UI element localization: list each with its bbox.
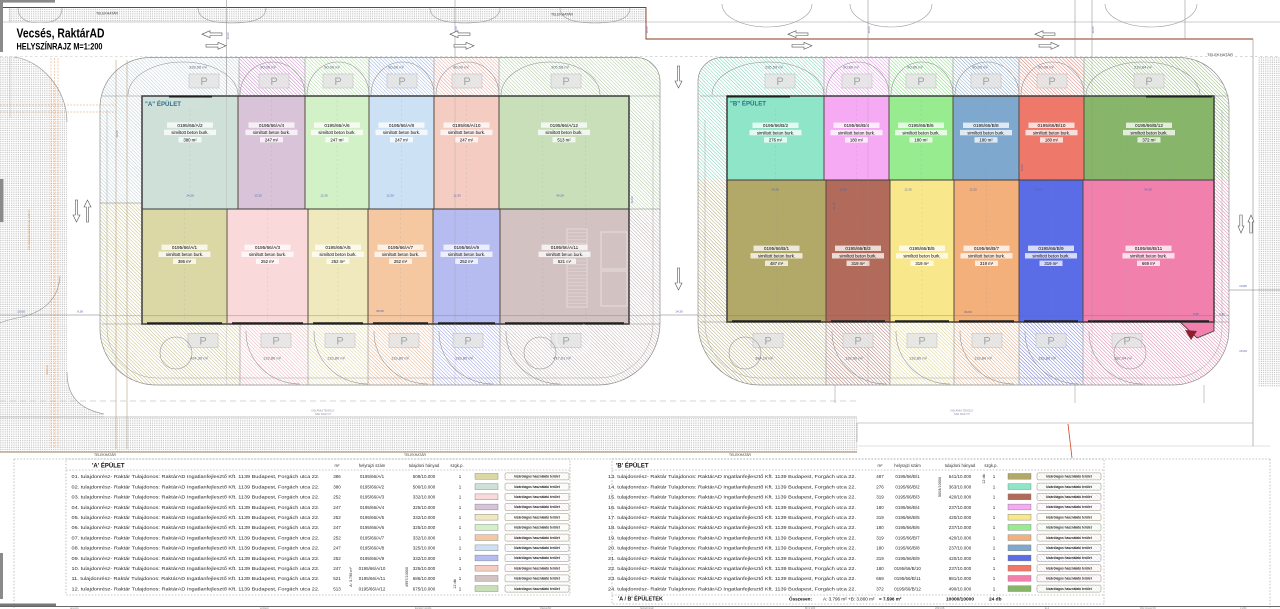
svg-text:similtott beton burk.: similtott beton burk.	[838, 130, 875, 135]
svg-text:0195/66/B/8: 0195/66/B/8	[895, 546, 920, 551]
svg-text:0195/66/B/10: 0195/66/B/10	[894, 566, 921, 571]
svg-text:0195/66/A/4: 0195/66/A/4	[360, 505, 385, 510]
svg-text:14,28: 14,28	[186, 194, 194, 198]
svg-text:500/10.000: 500/10.000	[413, 484, 436, 489]
svg-text:380: 380	[333, 484, 341, 489]
svg-text:332/10.000: 332/10.000	[413, 495, 436, 500]
svg-text:kizárólagos használatú terület: kizárólagos használatú terület	[514, 566, 560, 570]
svg-text:TELEKHATÁR: TELEKHATÁR	[1207, 52, 1233, 57]
svg-text:similtott beton burk.: similtott beton burk.	[319, 252, 356, 257]
svg-text:641/10.000: 641/10.000	[949, 474, 972, 479]
svg-text:380 m²: 380 m²	[183, 137, 197, 142]
svg-text:325/10.000: 325/10.000	[413, 566, 436, 571]
svg-text:180 m²: 180 m²	[979, 138, 993, 143]
svg-text:319 m²: 319 m²	[1044, 261, 1058, 266]
svg-text:34,28: 34,28	[556, 194, 564, 198]
svg-text:247 m²: 247 m²	[460, 137, 474, 142]
svg-text:kizárólagos használatú terület: kizárólagos használatú terület	[514, 526, 560, 530]
svg-text:23. tulajdonrész- Raktár Tulaj: 23. tulajdonrész- Raktár Tulajdonos: Rak…	[608, 576, 856, 581]
svg-text:90,00 m²: 90,00 m²	[453, 65, 469, 70]
svg-text:12 db: 12 db	[453, 579, 457, 589]
svg-text:0195/66/A/8: 0195/66/A/8	[389, 123, 415, 128]
svg-text:34,28: 34,28	[1144, 188, 1152, 192]
svg-text:0195/66/A/9: 0195/66/A/9	[454, 245, 480, 250]
svg-text:12,30: 12,30	[969, 188, 977, 192]
svg-text:0195/66/B/9: 0195/66/B/9	[1038, 246, 1064, 251]
svg-text:0195/66/A/3: 0195/66/A/3	[360, 495, 385, 500]
svg-text:247: 247	[333, 525, 341, 530]
svg-text:TELEKHATÁR: TELEKHATÁR	[551, 13, 574, 17]
svg-text:133,80 m²: 133,80 m²	[974, 356, 993, 361]
svg-text:14,30: 14,30	[675, 310, 683, 314]
svg-text:P: P	[336, 336, 343, 348]
svg-text:0195/66/A/9: 0195/66/A/9	[360, 556, 385, 561]
svg-text:10000/10000: 10000/10000	[946, 597, 974, 603]
svg-text:kizárólagos használatú terület: kizárólagos használatú terület	[1046, 587, 1092, 591]
svg-text:0195/66/B/2: 0195/66/B/2	[763, 123, 789, 128]
svg-text:247 m²: 247 m²	[265, 137, 279, 142]
svg-text:0195/66/A/7: 0195/66/A/7	[388, 245, 414, 250]
svg-text:319 m²: 319 m²	[851, 261, 865, 266]
svg-text:21. tulajdonrész- Raktár Tulaj: 21. tulajdonrész- Raktár Tulajdonos: Rak…	[608, 556, 856, 561]
svg-text:tulajdoni hányad: tulajdoni hányad	[945, 463, 976, 468]
svg-text:09. tulajdonrész- Raktár Tulaj: 09. tulajdonrész- Raktár Tulajdonos: Rak…	[72, 556, 320, 561]
svg-text:0195/66/A/5: 0195/66/A/5	[360, 515, 385, 520]
svg-text:similtott beton burk.: similtott beton burk.	[903, 254, 940, 259]
svg-text:similtott beton burk.: similtott beton burk.	[166, 252, 203, 257]
svg-text:12,30: 12,30	[386, 194, 394, 198]
svg-text:0195/66/B/11: 0195/66/B/11	[894, 576, 921, 581]
svg-text:similtott beton burk.: similtott beton burk.	[171, 130, 208, 135]
svg-text:490/10.000: 490/10.000	[949, 586, 972, 591]
svg-text:180: 180	[876, 525, 884, 530]
svg-text:96,50: 96,50	[964, 310, 972, 314]
svg-text:5,45: 5,45	[1193, 312, 1199, 316]
svg-text:319: 319	[876, 556, 884, 561]
svg-text:tulajdoni hányad: tulajdoni hányad	[409, 463, 440, 468]
svg-text:252: 252	[333, 535, 341, 540]
svg-text:319 m²: 319 m²	[915, 261, 929, 266]
svg-text:881/10.000: 881/10.000	[949, 576, 972, 581]
svg-text:16. tulajdonrész- Raktár Tulaj: 16. tulajdonrész- Raktár Tulajdonos: Rak…	[608, 505, 856, 510]
svg-text:237/10.000: 237/10.000	[949, 505, 972, 510]
svg-text:similtott beton burk.: similtott beton burk.	[968, 254, 1005, 259]
svg-text:kizárólagos használatú terület: kizárólagos használatú terület	[1046, 495, 1092, 499]
svg-text:kizárólagos használatú terület: kizárólagos használatú terület	[514, 546, 560, 550]
svg-text:P: P	[464, 336, 471, 348]
svg-text:328,06 m²: 328,06 m²	[189, 65, 208, 70]
svg-text:325/10.000: 325/10.000	[413, 546, 436, 551]
svg-text:P: P	[562, 336, 569, 348]
svg-text:247: 247	[333, 505, 341, 510]
svg-text:15,60: 15,60	[17, 310, 25, 314]
svg-text:424,30 m²: 424,30 m²	[190, 356, 209, 361]
svg-text:kizárólagos használatú terület: kizárólagos használatú terület	[1046, 566, 1092, 570]
svg-text:386: 386	[333, 474, 341, 479]
svg-text:133,80 m²: 133,80 m²	[909, 356, 928, 361]
svg-text:12 db: 12 db	[982, 474, 986, 484]
svg-text:0195/66/A/2: 0195/66/A/2	[360, 484, 385, 489]
svg-text:P: P	[463, 76, 470, 88]
svg-text:P: P	[1145, 76, 1152, 88]
svg-text:04. tulajdonrész- Raktár Tulaj: 04. tulajdonrész- Raktár Tulajdonos: Rak…	[72, 505, 320, 510]
svg-text:0195/66/B/7: 0195/66/B/7	[895, 535, 920, 540]
svg-text:0195/66/B/10: 0195/66/B/10	[1038, 123, 1066, 128]
svg-text:similtott beton burk.: similtott beton burk.	[1130, 130, 1167, 135]
svg-text:133,80 m²: 133,80 m²	[455, 356, 474, 361]
svg-text:similtott beton burk.: similtott beton burk.	[382, 252, 419, 257]
svg-text:0195/66/A/6: 0195/66/A/6	[360, 525, 385, 530]
svg-text:247: 247	[333, 566, 341, 571]
svg-text:219,84 m²: 219,84 m²	[1134, 65, 1153, 70]
svg-text:P: P	[776, 76, 783, 88]
svg-text:14,28: 14,28	[771, 188, 779, 192]
svg-text:12,30: 12,30	[839, 188, 847, 192]
svg-text:319 m²: 319 m²	[980, 261, 994, 266]
svg-text:96,50: 96,50	[376, 309, 384, 313]
svg-text:4,0 méteres közmű sáv 140 m: 4,0 méteres közmű sáv 140 m	[27, 209, 31, 250]
svg-text:16,00: 16,00	[1091, 26, 1095, 33]
svg-text:P: P	[1048, 76, 1055, 88]
svg-text:133,80 m²: 133,80 m²	[263, 356, 282, 361]
svg-text:252 m²: 252 m²	[394, 259, 408, 264]
svg-text:P: P	[199, 336, 206, 348]
svg-text:20. tulajdonrész- Raktár Tulaj: 20. tulajdonrész- Raktár Tulajdonos: Rak…	[608, 546, 856, 551]
svg-text:10,86: 10,86	[1239, 284, 1247, 288]
svg-text:similtott beton burk.: similtott beton burk.	[1032, 254, 1069, 259]
svg-text:03. tulajdonrész- Raktár Tulaj: 03. tulajdonrész- Raktár Tulajdonos: Rak…	[72, 495, 320, 500]
svg-text:276: 276	[876, 484, 884, 489]
svg-text:252: 252	[333, 556, 341, 561]
svg-text:0195/66/A/8: 0195/66/A/8	[360, 546, 385, 551]
svg-text:0195/66/B/1: 0195/66/B/1	[895, 474, 920, 479]
svg-text:16,00: 16,00	[867, 26, 871, 33]
svg-text:0195/66/B/6: 0195/66/B/6	[908, 123, 934, 128]
svg-text:06. tulajdonrész- Raktár Tulaj: 06. tulajdonrész- Raktár Tulajdonos: Rak…	[72, 525, 320, 530]
svg-text:252: 252	[333, 495, 341, 500]
svg-text:0195/66/B/3: 0195/66/B/3	[895, 495, 920, 500]
svg-text:A: 3.796 m²: A: 3.796 m²	[349, 566, 353, 586]
svg-text:18. tulajdonrész- Raktár Tulaj: 18. tulajdonrész- Raktár Tulajdonos: Rak…	[608, 525, 856, 530]
svg-text:180 m²: 180 m²	[1045, 138, 1059, 143]
svg-text:kizárólagos használatú terület: kizárólagos használatú terület	[514, 505, 560, 509]
svg-text:669: 669	[876, 576, 884, 581]
svg-text:332/10.000: 332/10.000	[413, 515, 436, 520]
svg-text:6491 96147 07: 6491 96147 07	[315, 413, 332, 416]
svg-text:0195/66/A/4: 0195/66/A/4	[259, 123, 285, 128]
svg-text:P: P	[853, 76, 860, 88]
svg-text:90,00 m²: 90,00 m²	[388, 65, 404, 70]
svg-text:similtott beton burk.: similtott beton burk.	[448, 130, 485, 135]
svg-text:0195/66/A/7: 0195/66/A/7	[360, 535, 385, 540]
svg-text:508/10.000: 508/10.000	[413, 474, 436, 479]
svg-text:HELYSZÍNRAJZ M=1:200: HELYSZÍNRAJZ M=1:200	[17, 42, 103, 52]
svg-text:kizárólagos használatú terület: kizárólagos használatú terület	[1046, 485, 1092, 489]
svg-text:16,00: 16,00	[115, 130, 119, 137]
svg-text:372 m²: 372 m²	[1142, 138, 1156, 143]
svg-text:similtott beton burk.: similtott beton burk.	[253, 130, 290, 135]
svg-text:0195/66/B/2: 0195/66/B/2	[895, 484, 920, 489]
svg-text:07. tulajdonrész- Raktár Tulaj: 07. tulajdonrész- Raktár Tulajdonos: Rak…	[72, 535, 320, 540]
svg-text:0195/66/B/6: 0195/66/B/6	[895, 525, 920, 530]
svg-text:384,10 m²: 384,10 m²	[755, 356, 774, 361]
svg-text:372: 372	[876, 586, 884, 591]
svg-text:90,80 m²: 90,80 m²	[907, 65, 923, 70]
svg-text:0195/66/B/5: 0195/66/B/5	[909, 246, 935, 251]
svg-text:kizárólagos használatú terület: kizárólagos használatú terület	[1046, 526, 1092, 530]
svg-text:similtott beton burk.: similtott beton burk.	[318, 130, 355, 135]
svg-text:01. tulajdonrész- Raktár Tulaj: 01. tulajdonrész- Raktár Tulajdonos: Rak…	[72, 474, 320, 479]
svg-text:17. tulajdonrész- Raktár Tulaj: 17. tulajdonrész- Raktár Tulajdonos: Rak…	[608, 515, 856, 520]
svg-text:A: 3.796 m² +B: 3.800 m²: A: 3.796 m² +B: 3.800 m²	[823, 597, 875, 602]
svg-text:226,59 m²: 226,59 m²	[765, 65, 784, 70]
svg-text:90,80 m²: 90,80 m²	[843, 65, 859, 70]
svg-text:0195/66/B/1: 0195/66/B/1	[764, 246, 790, 251]
svg-text:similtott beton burk.: similtott beton burk.	[902, 130, 939, 135]
svg-text:közmű: közmű	[45, 365, 49, 374]
svg-text:22. tulajdonrész- Raktár Tulaj: 22. tulajdonrész- Raktár Tulajdonos: Rak…	[608, 566, 856, 571]
svg-text:kizárólagos használatú terület: kizárólagos használatú terület	[1046, 556, 1092, 560]
svg-text:helyrajzi szám: helyrajzi szám	[894, 463, 921, 468]
svg-text:P: P	[270, 76, 277, 88]
svg-text:133,90 m²: 133,90 m²	[845, 356, 864, 361]
svg-text:05. tulajdonrész- Raktár Tulaj: 05. tulajdonrész- Raktár Tulajdonos: Rak…	[72, 515, 320, 520]
svg-text:similtott beton burk.: similtott beton burk.	[1033, 130, 1070, 135]
svg-text:16,00: 16,00	[226, 32, 230, 39]
svg-text:12,30: 12,30	[320, 194, 328, 198]
svg-text:4997/10000: 4997/10000	[405, 567, 409, 587]
svg-text:420/10.000: 420/10.000	[949, 515, 972, 520]
svg-text:11. tulajdonrész- Raktár Tulaj: 11. tulajdonrész- Raktár Tulajdonos: Rak…	[72, 576, 320, 581]
svg-text:332/10.000: 332/10.000	[413, 556, 436, 561]
svg-text:similtott beton burk.: similtott beton burk.	[757, 130, 794, 135]
svg-text:similtott beton burk.: similtott beton burk.	[758, 254, 795, 259]
svg-text:P: P	[854, 336, 861, 348]
svg-text:TELEKHATÁR: TELEKHATÁR	[729, 453, 752, 457]
svg-text:0195/66/A/1: 0195/66/A/1	[172, 245, 198, 250]
svg-text:similtott beton burk.: similtott beton burk.	[839, 254, 876, 259]
svg-text:237/10.000: 237/10.000	[949, 566, 972, 571]
svg-text:'A' ÉPÜLET: 'A' ÉPÜLET	[92, 462, 125, 470]
svg-text:0195/66/A/12: 0195/66/A/12	[550, 123, 578, 128]
svg-text:kizárólagos használatú terület: kizárólagos használatú terület	[1046, 546, 1092, 550]
svg-text:24. tulajdonrész- Raktár Tulaj: 24. tulajdonrész- Raktár Tulajdonos: Rak…	[608, 586, 856, 591]
svg-text:90,00 m²: 90,00 m²	[1038, 65, 1054, 70]
svg-text:similtott beton burk.: similtott beton burk.	[249, 252, 286, 257]
svg-text:0195/66/A/6: 0195/66/A/6	[324, 123, 350, 128]
svg-text:12,30: 12,30	[1034, 188, 1042, 192]
svg-text:420/10.000: 420/10.000	[949, 535, 972, 540]
svg-text:24 db: 24 db	[989, 597, 1002, 603]
svg-text:252 m²: 252 m²	[261, 259, 275, 264]
svg-text:similtott beton burk.: similtott beton burk.	[545, 130, 582, 135]
svg-text:TELEKHATÁR: TELEKHATÁR	[404, 453, 427, 457]
svg-text:237/10.000: 237/10.000	[949, 525, 972, 530]
svg-text:420/10.000: 420/10.000	[949, 495, 972, 500]
svg-text:247: 247	[333, 546, 341, 551]
svg-text:5003/10000: 5003/10000	[938, 477, 942, 497]
svg-text:P: P	[918, 336, 925, 348]
svg-text:252: 252	[333, 515, 341, 520]
svg-text:szgk.p.: szgk.p.	[450, 463, 463, 468]
svg-text:"B" ÉPÜLET: "B" ÉPÜLET	[730, 98, 766, 107]
svg-text:02. tulajdonrész- Raktár Tulaj: 02. tulajdonrész- Raktár Tulajdonos: Rak…	[72, 484, 320, 489]
svg-text:P: P	[200, 76, 207, 88]
svg-text:85,10: 85,10	[832, 202, 836, 209]
svg-text:0195/66/A/1: 0195/66/A/1	[360, 474, 385, 479]
svg-text:252 m²: 252 m²	[331, 259, 345, 264]
svg-text:kizárólagos használatú terület: kizárólagos használatú terület	[1046, 536, 1092, 540]
svg-text:6491 96147 07: 6491 96147 07	[954, 413, 971, 416]
svg-text:521 m²: 521 m²	[558, 259, 572, 264]
svg-text:Összesen:: Összesen:	[789, 596, 812, 602]
svg-text:15,06: 15,06	[1239, 349, 1247, 353]
svg-text:'B' ÉPÜLET: 'B' ÉPÜLET	[616, 462, 649, 470]
svg-text:kizárólagos használatú terület: kizárólagos használatú terület	[1046, 475, 1092, 479]
svg-text:0195/66/B/4: 0195/66/B/4	[844, 123, 870, 128]
svg-text:0195/66/B/7: 0195/66/B/7	[974, 246, 1000, 251]
svg-text:0195/66/A/10: 0195/66/A/10	[359, 566, 386, 571]
svg-text:TELEKHATÁR: TELEKHATÁR	[94, 453, 117, 457]
svg-text:16,00: 16,00	[630, 196, 634, 203]
svg-text:669 m²: 669 m²	[1142, 261, 1156, 266]
svg-text:0195/66/B/4: 0195/66/B/4	[895, 505, 920, 510]
svg-text:386 m²: 386 m²	[178, 259, 192, 264]
svg-text:90,00 m²: 90,00 m²	[324, 65, 340, 70]
svg-text:247 m²: 247 m²	[395, 137, 409, 142]
svg-text:0195/66/B/9: 0195/66/B/9	[895, 556, 920, 561]
svg-text:0195/66/B/11: 0195/66/B/11	[1135, 246, 1163, 251]
svg-text:0195/66/A/11: 0195/66/A/11	[359, 576, 386, 581]
svg-text:513 m²: 513 m²	[557, 137, 571, 142]
svg-text:325/10.000: 325/10.000	[413, 525, 436, 530]
svg-text:P: P	[400, 336, 407, 348]
svg-text:0195/66/B/8: 0195/66/B/8	[973, 123, 999, 128]
svg-text:kizárólagos használatú terület: kizárólagos használatú terület	[514, 577, 560, 581]
svg-text:90,00 m²: 90,00 m²	[972, 65, 988, 70]
svg-text:247 m²: 247 m²	[330, 137, 344, 142]
svg-text:P: P	[398, 76, 405, 88]
svg-text:319: 319	[876, 535, 884, 540]
svg-text:0195/66/B/3: 0195/66/B/3	[845, 246, 871, 251]
svg-text:180 m²: 180 m²	[914, 138, 928, 143]
svg-text:12. tulajdonrész- Raktár Tulaj: 12. tulajdonrész- Raktár Tulajdonos: Rak…	[72, 586, 320, 591]
svg-text:0195/66/A/2: 0195/66/A/2	[177, 123, 203, 128]
svg-text:90,00 m²: 90,00 m²	[260, 65, 276, 70]
svg-text:08. tulajdonrész- Raktár Tulaj: 08. tulajdonrész- Raktár Tulajdonos: Rak…	[72, 546, 320, 551]
svg-text:0195/66/A/11: 0195/66/A/11	[551, 245, 579, 250]
svg-text:13. tulajdonrész- Raktár Tulaj: 13. tulajdonrész- Raktár Tulajdonos: Rak…	[608, 474, 856, 479]
svg-text:133,80 m²: 133,80 m²	[1038, 356, 1057, 361]
svg-text:12,30: 12,30	[904, 188, 912, 192]
svg-text:0195/66/A/10: 0195/66/A/10	[453, 123, 481, 128]
svg-text:kizárólagos használatú terület: kizárólagos használatú terület	[514, 536, 560, 540]
svg-text:= 7.596 m²: = 7.596 m²	[879, 597, 902, 602]
svg-text:487 m²: 487 m²	[770, 261, 784, 266]
svg-text:kizárólagos használatú terület: kizárólagos használatú terület	[1046, 505, 1092, 509]
svg-text:319: 319	[876, 495, 884, 500]
svg-text:kizárólagos használatú terület: kizárólagos használatú terület	[514, 485, 560, 489]
svg-text:513: 513	[333, 586, 341, 591]
svg-text:0195/66/A/3: 0195/66/A/3	[255, 245, 281, 250]
svg-text:686/10.000: 686/10.000	[413, 576, 436, 581]
svg-text:kizárólagos használatú terület: kizárólagos használatú terület	[1046, 577, 1092, 581]
svg-text:similtott beton burk.: similtott beton burk.	[967, 130, 1004, 135]
svg-text:0195/66/B/12: 0195/66/B/12	[894, 586, 921, 591]
svg-text:14. tulajdonrész- Raktár Tulaj: 14. tulajdonrész- Raktár Tulajdonos: Rak…	[608, 484, 856, 489]
svg-text:237/10.000: 237/10.000	[949, 546, 972, 551]
svg-text:similtott beton burk.: similtott beton burk.	[448, 252, 485, 257]
svg-text:kizárólagos használatú terület: kizárólagos használatú terület	[514, 515, 560, 519]
svg-text:6,36: 6,36	[1219, 312, 1225, 316]
svg-text:276 m²: 276 m²	[769, 138, 783, 143]
svg-text:319: 319	[876, 515, 884, 520]
svg-text:similtott beton burk.: similtott beton burk.	[546, 252, 583, 257]
svg-text:m²: m²	[335, 463, 340, 468]
svg-text:kizárólagos használatú terület: kizárólagos használatú terület	[514, 587, 560, 591]
svg-text:kizárólagos használatú terület: kizárólagos használatú terület	[1046, 515, 1092, 519]
svg-text:133,80 m²: 133,80 m²	[391, 356, 410, 361]
svg-text:0195/66/A/5: 0195/66/A/5	[325, 245, 351, 250]
svg-text:675/10.000: 675/10.000	[413, 586, 436, 591]
svg-text:180: 180	[876, 566, 884, 571]
svg-text:'A / B' ÉPÜLETEK: 'A / B' ÉPÜLETEK	[618, 595, 663, 603]
svg-text:325/10.000: 325/10.000	[413, 505, 436, 510]
svg-text:332/10.000: 332/10.000	[413, 535, 436, 540]
svg-text:16,00: 16,00	[645, 26, 649, 33]
svg-text:0195/66/B/12: 0195/66/B/12	[1135, 123, 1163, 128]
svg-text:15. tulajdonrész- Raktár Tulaj: 15. tulajdonrész- Raktár Tulajdonos: Rak…	[608, 495, 856, 500]
svg-text:0195/66/B/5: 0195/66/B/5	[895, 515, 920, 520]
svg-text:TELEKHATÁR: TELEKHATÁR	[96, 12, 119, 16]
svg-text:P: P	[983, 336, 990, 348]
svg-text:487: 487	[876, 474, 884, 479]
svg-text:9,36: 9,36	[77, 310, 83, 314]
svg-text:12,30: 12,30	[254, 194, 262, 198]
svg-text:19. tulajdonrész- Raktár Tulaj: 19. tulajdonrész- Raktár Tulajdonos: Rak…	[608, 535, 856, 540]
svg-text:kizárólagos használatú terület: kizárólagos használatú terület	[514, 556, 560, 560]
svg-text:P: P	[1047, 336, 1054, 348]
svg-text:similtott beton burk.: similtott beton burk.	[1130, 254, 1167, 259]
svg-text:P: P	[562, 76, 569, 88]
svg-text:P: P	[764, 336, 771, 348]
svg-text:P: P	[982, 76, 989, 88]
svg-text:m²: m²	[878, 463, 883, 468]
svg-text:P: P	[272, 336, 279, 348]
svg-text:kizárólagos használatú terület: kizárólagos használatú terület	[514, 475, 560, 479]
svg-text:helyrajzi szám: helyrajzi szám	[359, 463, 386, 468]
svg-text:P: P	[334, 76, 341, 88]
svg-text:521: 521	[333, 576, 341, 581]
svg-text:420/10.000: 420/10.000	[949, 556, 972, 561]
svg-text:similtott beton burk.: similtott beton burk.	[383, 130, 420, 135]
svg-text:382,94 m²: 382,94 m²	[1114, 356, 1133, 361]
svg-text:kizárólagos használatú terület: kizárólagos használatú terület	[514, 495, 560, 499]
svg-text:180 m²: 180 m²	[850, 138, 864, 143]
svg-text:180: 180	[876, 505, 884, 510]
svg-text:"A" ÉPÜLET: "A" ÉPÜLET	[145, 99, 181, 108]
svg-text:szgk.p.: szgk.p.	[984, 463, 997, 468]
svg-text:305,58 m²: 305,58 m²	[551, 65, 570, 70]
svg-text:Vecsés, RaktárAD: Vecsés, RaktárAD	[17, 26, 105, 41]
svg-text:252 m²: 252 m²	[460, 259, 474, 264]
svg-text:0195/66/A/12: 0195/66/A/12	[359, 586, 386, 591]
svg-text:P: P	[917, 76, 924, 88]
svg-text:12,30: 12,30	[453, 194, 461, 198]
svg-text:180: 180	[876, 546, 884, 551]
svg-text:10. tulajdonrész- Raktár Tulaj: 10. tulajdonrész- Raktár Tulajdonos: Rak…	[72, 566, 320, 571]
svg-text:16,00: 16,00	[1020, 164, 1024, 171]
